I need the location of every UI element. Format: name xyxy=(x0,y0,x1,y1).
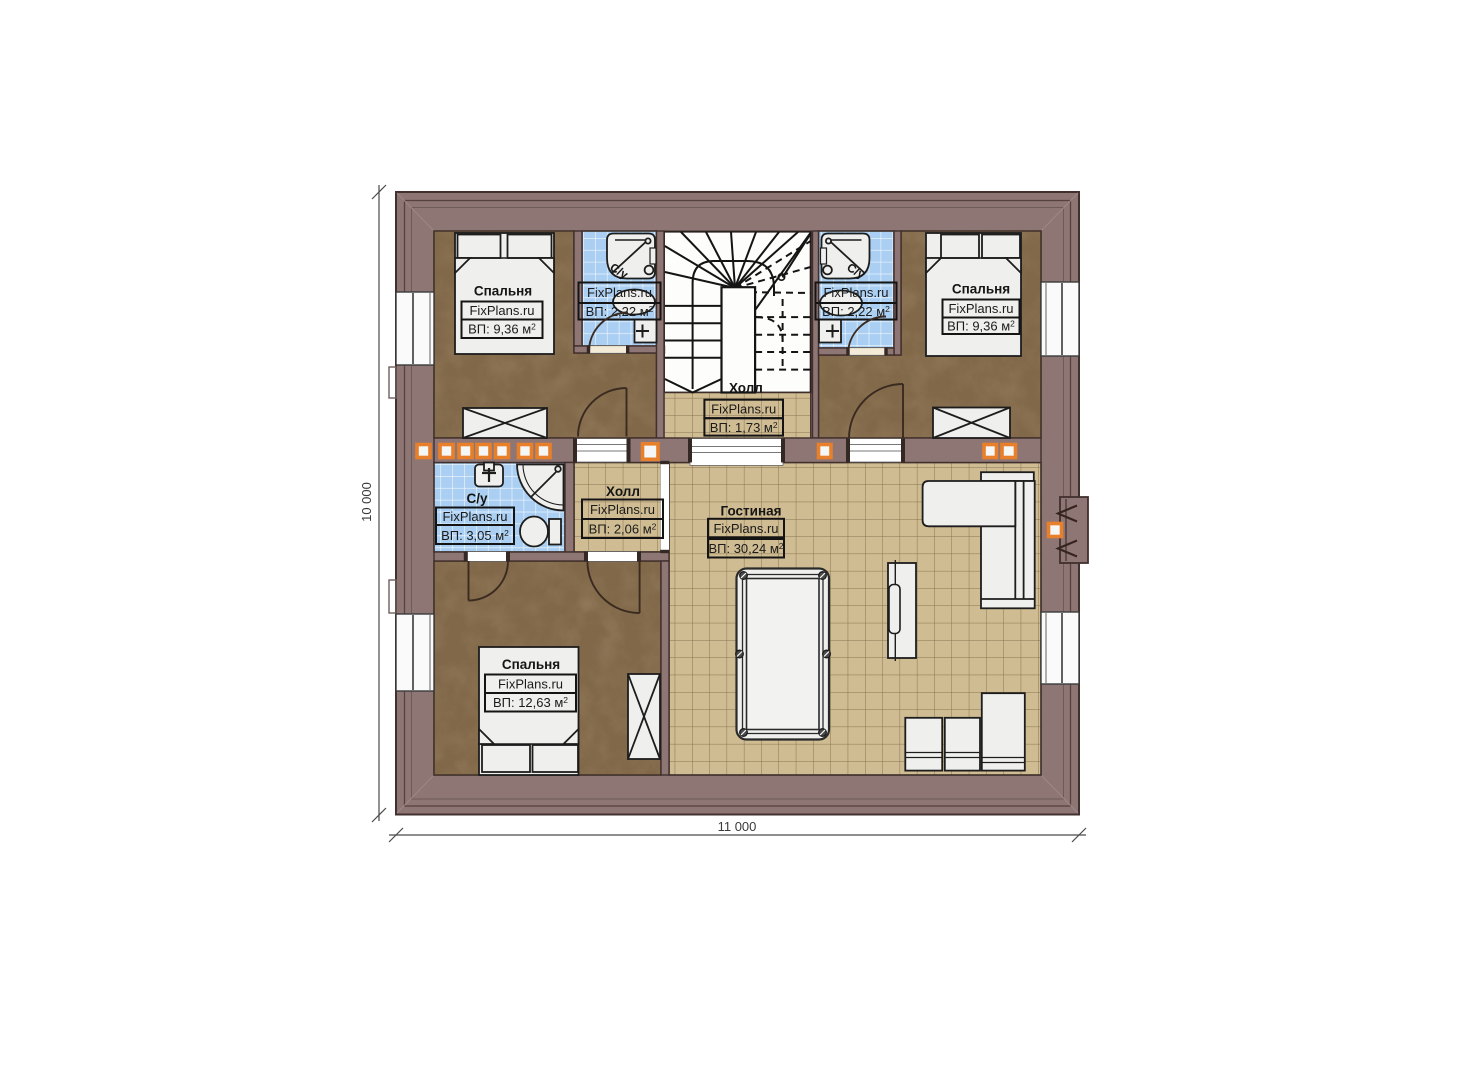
svg-text:11 000: 11 000 xyxy=(718,819,757,834)
svg-text:Спальня: Спальня xyxy=(952,282,1010,297)
svg-text:FixPlans.ru: FixPlans.ru xyxy=(498,677,563,692)
svg-text:ВП: 12,63 м2: ВП: 12,63 м2 xyxy=(493,695,568,710)
svg-text:FixPlans.ru: FixPlans.ru xyxy=(442,509,507,524)
svg-text:ВП: 9,36 м2: ВП: 9,36 м2 xyxy=(468,322,536,337)
svg-text:FixPlans.ru: FixPlans.ru xyxy=(587,285,652,300)
svg-text:Холл: Холл xyxy=(606,484,640,499)
svg-text:Холл: Холл xyxy=(729,381,763,396)
svg-text:FixPlans.ru: FixPlans.ru xyxy=(948,301,1013,316)
svg-text:ВП: 9,36 м2: ВП: 9,36 м2 xyxy=(947,319,1015,334)
svg-text:FixPlans.ru: FixPlans.ru xyxy=(469,303,534,318)
svg-text:ВП: 2,22 м2: ВП: 2,22 м2 xyxy=(586,304,654,319)
svg-text:FixPlans.ru: FixPlans.ru xyxy=(823,285,888,300)
svg-text:Спальня: Спальня xyxy=(502,657,560,672)
svg-text:С/у: С/у xyxy=(466,491,488,506)
svg-text:FixPlans.ru: FixPlans.ru xyxy=(711,402,776,417)
svg-text:Спальня: Спальня xyxy=(474,284,532,299)
svg-text:ВП: 2,06 м2: ВП: 2,06 м2 xyxy=(589,522,657,537)
svg-text:FixPlans.ru: FixPlans.ru xyxy=(713,521,778,536)
svg-text:FixPlans.ru: FixPlans.ru xyxy=(590,502,655,517)
svg-text:ВП: 3,05 м2: ВП: 3,05 м2 xyxy=(441,528,509,543)
svg-text:ВП: 1,73 м2: ВП: 1,73 м2 xyxy=(710,420,778,435)
svg-text:ВП: 30,24 м2: ВП: 30,24 м2 xyxy=(708,541,783,556)
svg-text:10 000: 10 000 xyxy=(359,482,374,522)
svg-text:Гостиная: Гостиная xyxy=(720,504,781,519)
